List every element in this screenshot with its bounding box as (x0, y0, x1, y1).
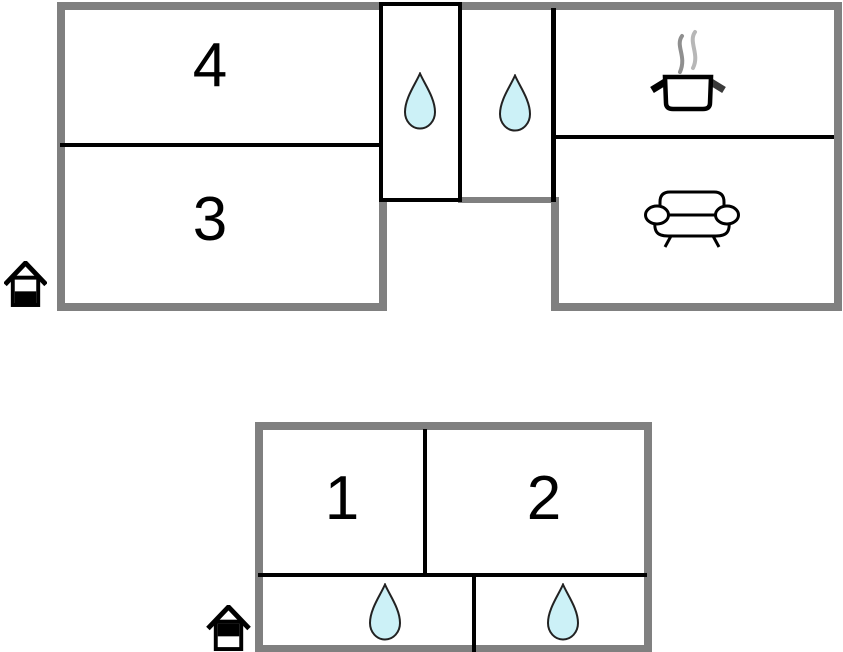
lower-wall-top (255, 422, 652, 430)
water-drop-icon (497, 74, 533, 132)
upper-wall-left (57, 2, 65, 311)
divider-rooms-bathrooms (258, 573, 647, 577)
water-drop-icon (367, 583, 403, 641)
floorplan-canvas: 4 3 (0, 0, 843, 652)
sofa-icon (644, 189, 740, 249)
lower-wall-left (255, 422, 263, 652)
divider-bath-kitchen (551, 8, 556, 202)
room-2-label: 2 (514, 468, 574, 530)
divider-bathrooms (472, 577, 476, 652)
house-ground-floor-icon (4, 261, 47, 308)
room-4-label: 4 (180, 35, 240, 97)
cooking-pot-icon (648, 28, 728, 112)
lower-wall-right (644, 422, 652, 652)
courtyard-wall-right (551, 197, 559, 311)
room-3-label: 3 (180, 189, 240, 251)
divider-kitchen-living (551, 135, 834, 139)
upper-wall-bottom-left-wing (57, 303, 387, 311)
upper-wall-bottom-right-wing (551, 303, 842, 311)
divider-room4-room3 (60, 143, 382, 147)
water-drop-icon (402, 72, 438, 130)
room-1-label: 1 (312, 468, 372, 530)
lower-wall-bottom (255, 645, 652, 652)
courtyard-wall-left (379, 197, 387, 311)
water-drop-icon (545, 583, 581, 641)
house-upper-floor-icon (206, 605, 251, 652)
upper-wall-right (834, 2, 842, 311)
courtyard-wall-top (458, 197, 555, 203)
divider-room1-room2 (423, 429, 427, 576)
